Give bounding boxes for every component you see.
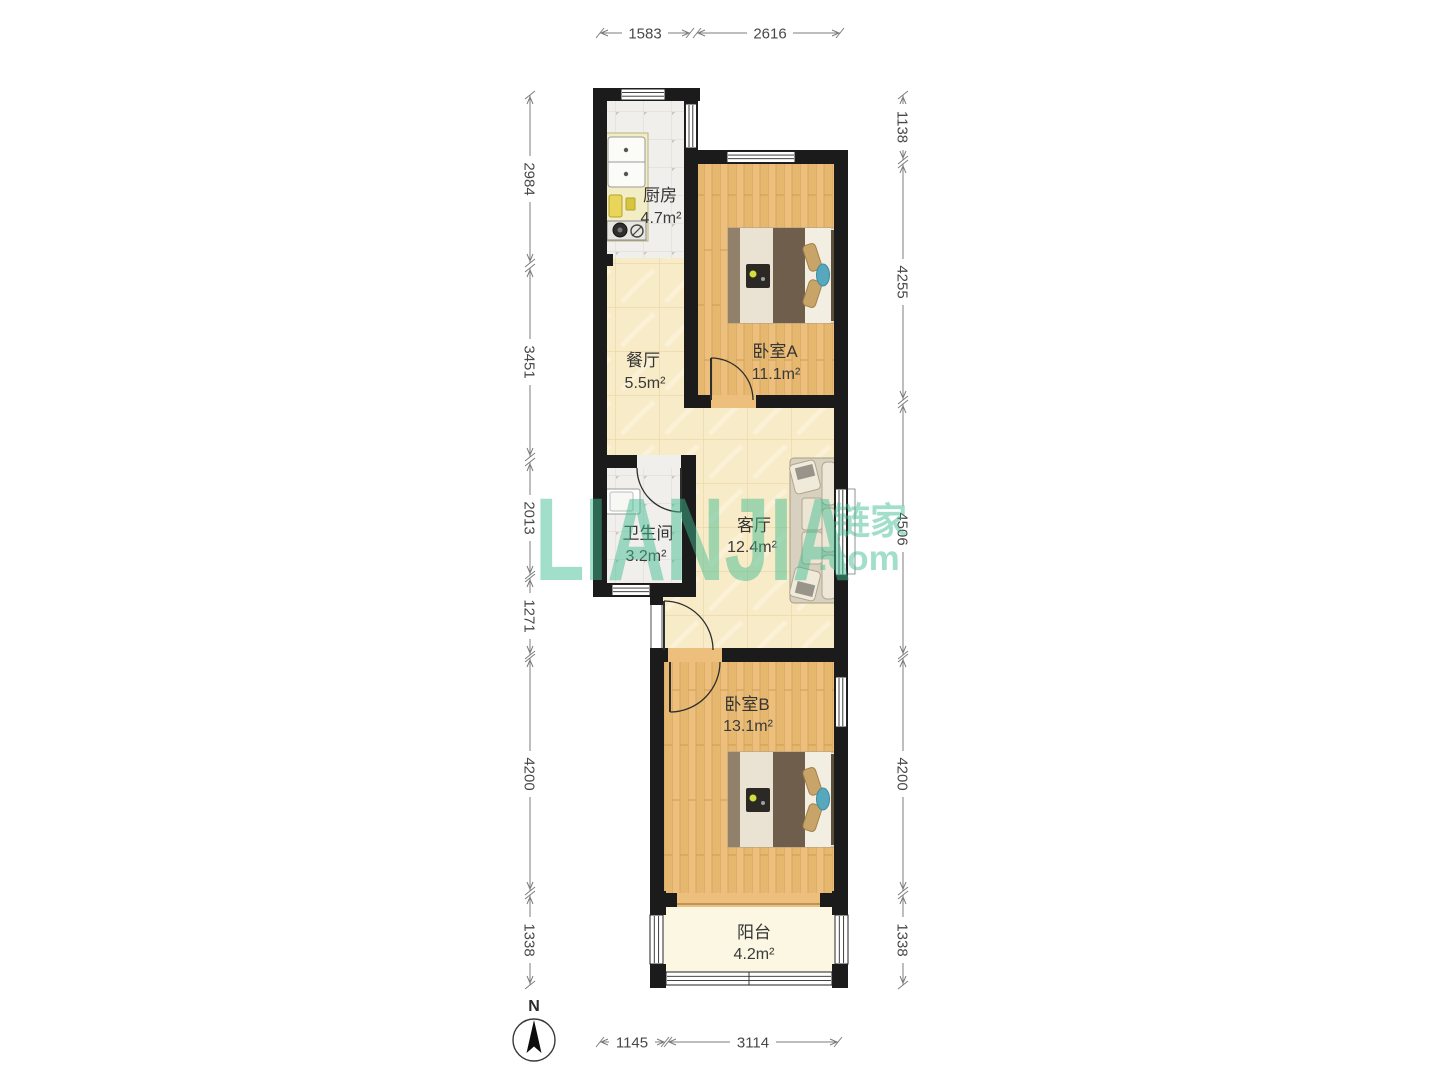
dining-area: 5.5m² (625, 375, 667, 392)
svg-text:3451: 3451 (521, 345, 538, 378)
dim-bottom-1: 3114 (664, 1033, 842, 1052)
svg-text:3114: 3114 (737, 1035, 769, 1052)
svg-text:1338: 1338 (521, 923, 538, 956)
dim-right-3: 4200 (894, 654, 913, 895)
bedroomA-area: 11.1m² (752, 366, 801, 383)
passage-floor (684, 408, 698, 455)
entry-doorway (650, 603, 663, 650)
balcony-opening (677, 893, 820, 907)
bedroomB-bed (728, 752, 836, 847)
dim-left-4: 4200 (521, 654, 540, 895)
watermark-main: LIANJIA (535, 474, 851, 606)
bedroomB-window (836, 677, 847, 727)
kitchen-top-window (621, 89, 665, 100)
dim-bottom-0: 1145 (596, 1033, 669, 1052)
bedroomA-label: 卧室A (752, 342, 798, 361)
floorplan-page: 厨房 4.7m² 卧室A 11.1m² 餐厅 5.5m² 卫生间 3.2m² 客… (0, 0, 1440, 1080)
svg-text:1138: 1138 (894, 111, 911, 143)
balcony-front-window (666, 972, 832, 985)
dim-right-1: 4255 (894, 160, 913, 404)
svg-text:1145: 1145 (616, 1035, 648, 1052)
svg-text:4200: 4200 (521, 757, 538, 790)
balcony-left-window (650, 915, 663, 964)
bathroom-doorway (637, 455, 681, 468)
kitchen-side-window (686, 104, 697, 148)
dim-left-0: 2984 (521, 91, 540, 267)
dining-label: 餐厅 (626, 351, 660, 370)
svg-text:2984: 2984 (521, 162, 538, 195)
bedroomA-window (727, 152, 795, 163)
dim-top-1: 2616 (693, 24, 844, 43)
svg-text:2616: 2616 (753, 26, 786, 43)
dim-left-5: 1338 (521, 891, 540, 989)
kitchen-area: 4.7m² (641, 210, 683, 227)
svg-text:4200: 4200 (894, 757, 911, 790)
bedroomB-label: 卧室B (724, 695, 769, 714)
compass: N (513, 998, 555, 1061)
balcony-area: 4.2m² (734, 946, 776, 963)
bedroomB-area: 13.1m² (723, 718, 773, 735)
balcony-right-window (835, 915, 848, 964)
dim-left-1: 3451 (521, 264, 540, 461)
bedroomA-doorway (711, 395, 756, 408)
floorplan-canvas: 厨房 4.7m² 卧室A 11.1m² 餐厅 5.5m² 卫生间 3.2m² 客… (0, 0, 1440, 1080)
cutting-board (609, 195, 622, 217)
bedroomB-doorway (668, 648, 722, 662)
watermark-com: .com (818, 539, 900, 578)
watermark: LIANJIA 链家 .com (535, 474, 907, 606)
dim-right-4: 1338 (894, 891, 913, 989)
svg-text:1338: 1338 (894, 923, 911, 956)
svg-text:4255: 4255 (894, 265, 911, 298)
kitchen-label: 厨房 (643, 186, 677, 205)
svg-text:1583: 1583 (628, 26, 661, 43)
dim-right-0: 1138 (894, 91, 913, 164)
bedroomA-bed (728, 228, 836, 323)
dim-top-0: 1583 (596, 24, 694, 43)
watermark-cn: 链家 (833, 501, 907, 542)
compass-north-label: N (528, 998, 540, 1015)
balcony-label: 阳台 (737, 923, 771, 942)
